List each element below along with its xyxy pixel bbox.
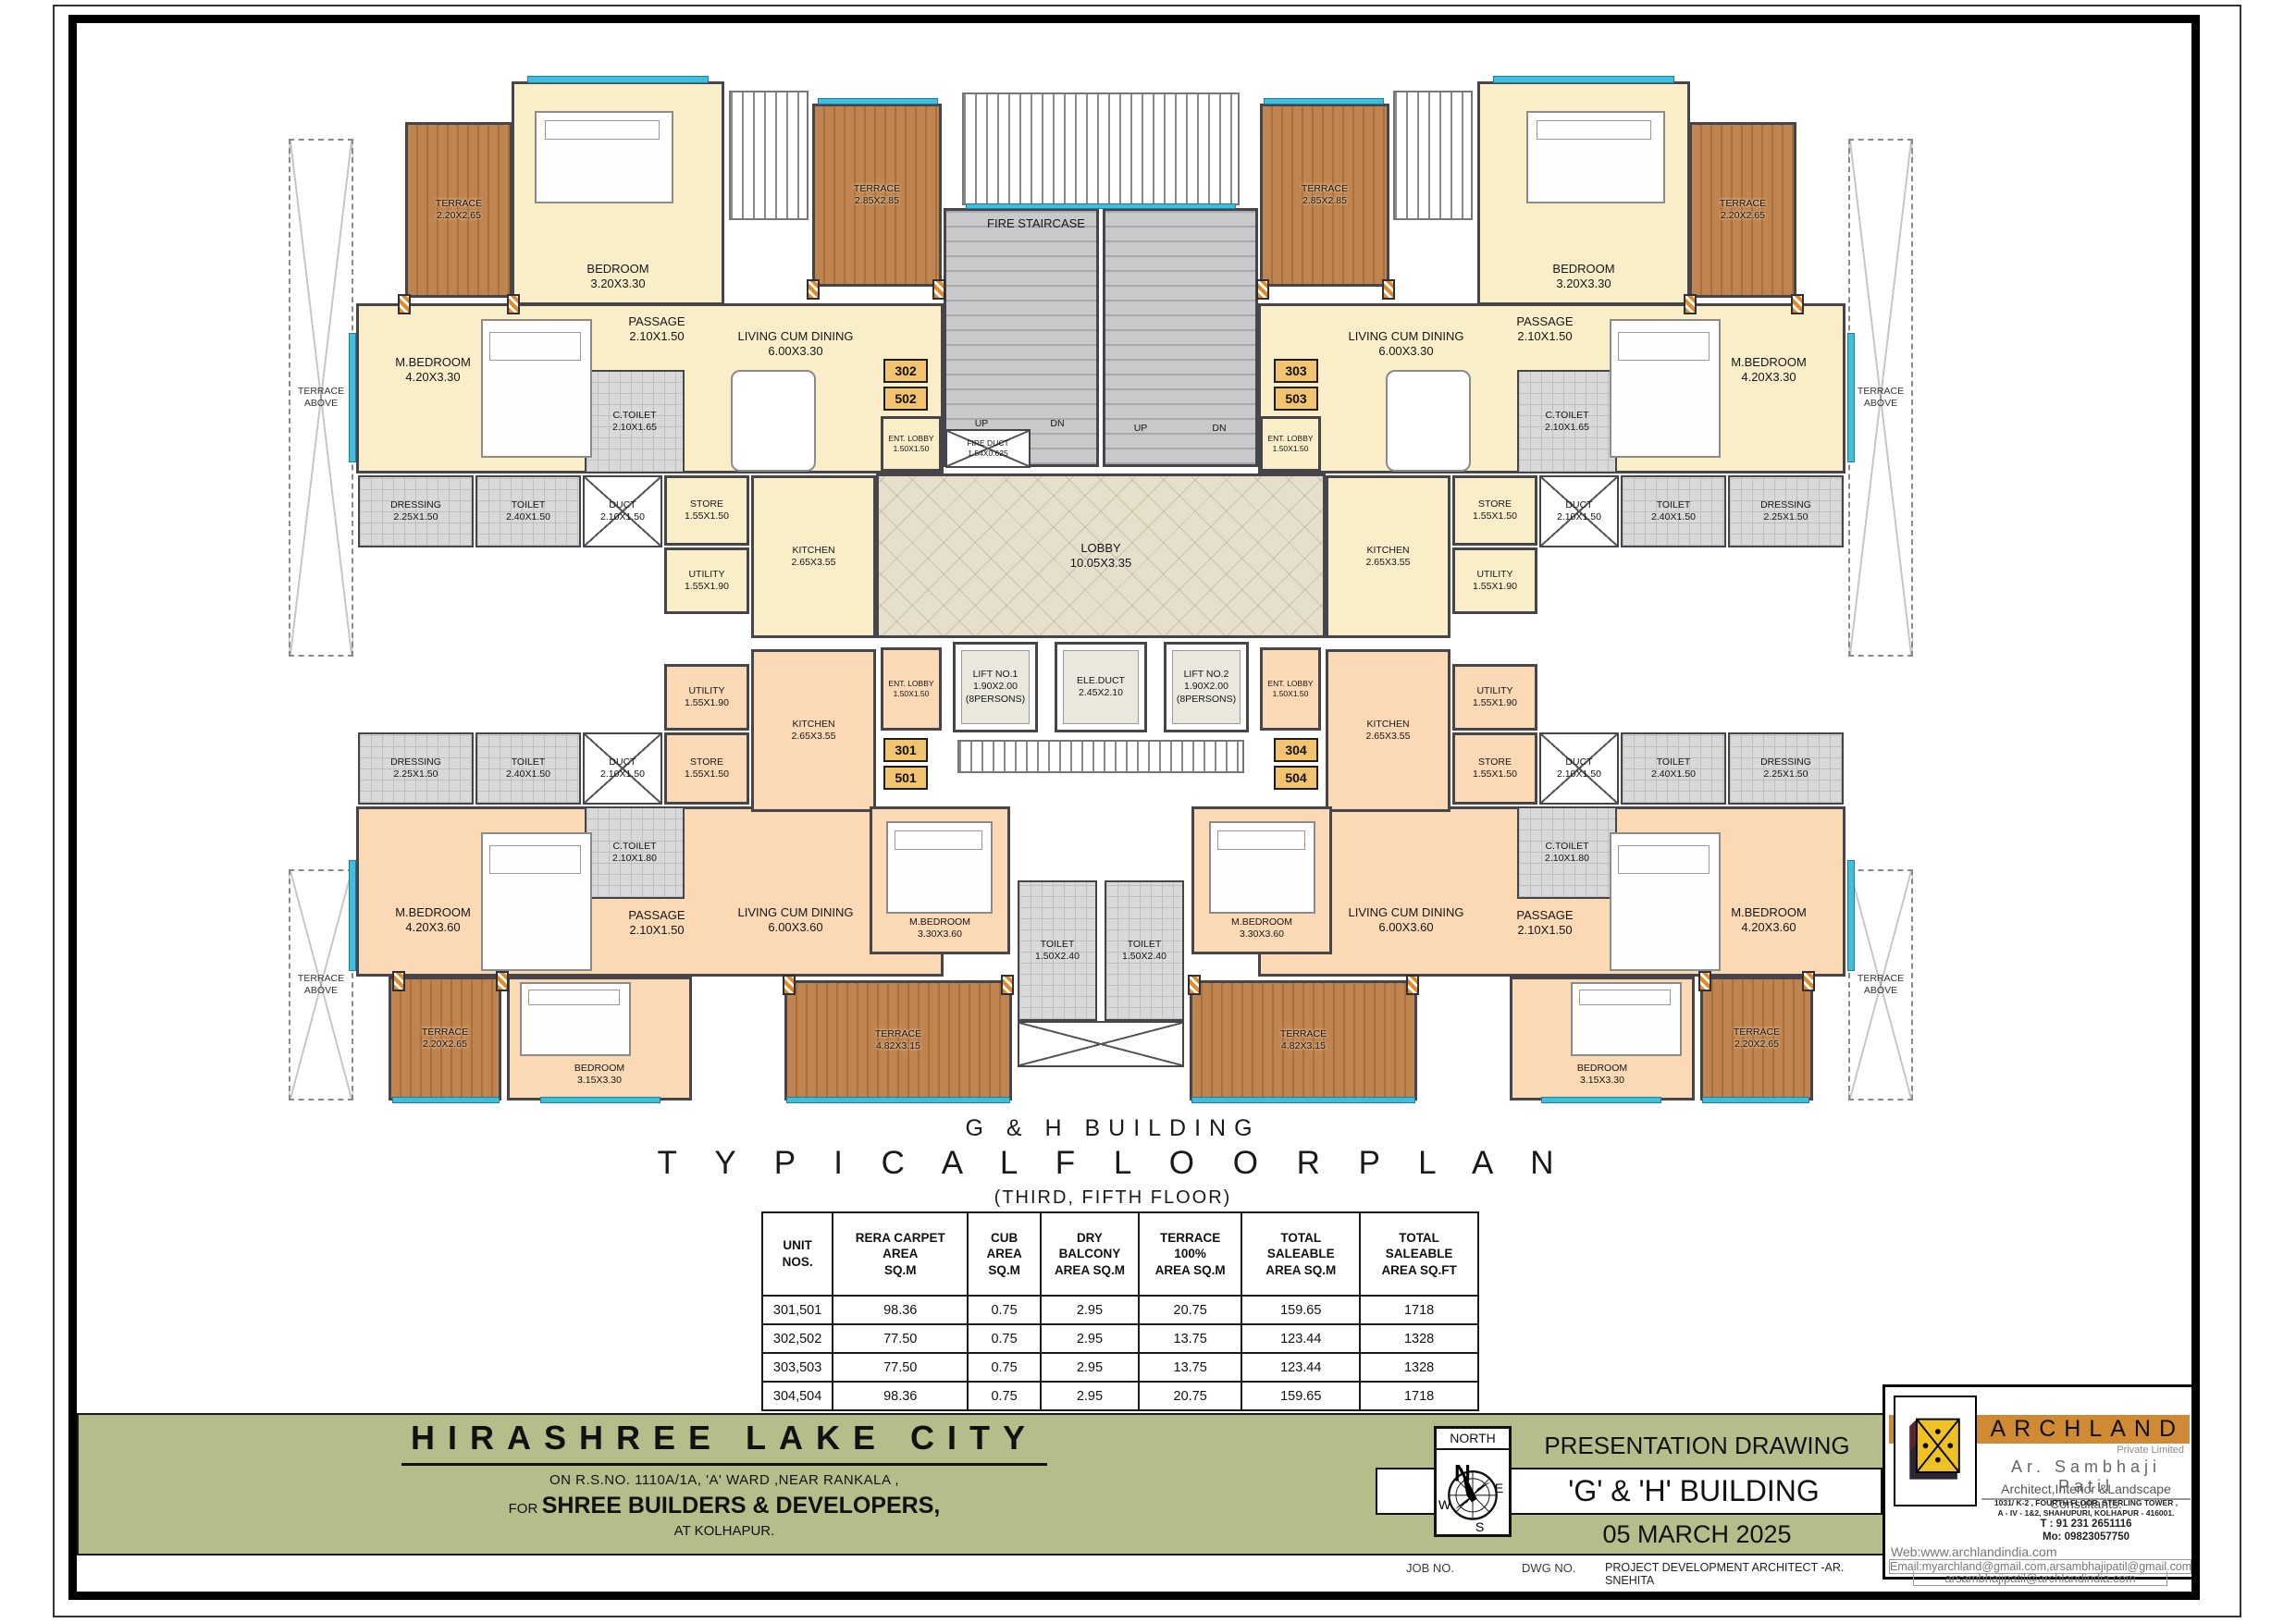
room-dimension: 1.55X1.90 bbox=[1473, 581, 1517, 593]
project-client-line: FOR SHREE BUILDERS & DEVELOPERS, bbox=[77, 1493, 1372, 1519]
plan-subtitle: (THIRD, FIFTH FLOOR) bbox=[650, 1187, 1575, 1209]
unit-tag-304: 304504 bbox=[1274, 738, 1318, 790]
room-label: STORE bbox=[690, 756, 723, 768]
table-cell: 2.95 bbox=[1041, 1353, 1139, 1382]
u304-toilet: TOILET2.40X1.50 bbox=[1621, 732, 1726, 805]
room-dimension: 6.00X3.60 bbox=[768, 920, 822, 935]
u301-terrace-corner: TERRACE2.20X2.65 bbox=[389, 977, 501, 1100]
room-label: DN bbox=[1212, 423, 1226, 435]
window-strip bbox=[1847, 860, 1855, 971]
window-strip bbox=[1191, 1097, 1415, 1103]
room-label: KITCHEN bbox=[1366, 719, 1409, 731]
room-dimension: 2.10X1.50 bbox=[629, 923, 684, 938]
archland-logo-icon bbox=[1895, 1397, 1975, 1505]
terrace-above-tl: TERRACE ABOVE bbox=[289, 139, 353, 657]
lobby: LOBBY10.05X3.35 bbox=[876, 473, 1326, 638]
room-dimension: (8PERSONS) bbox=[1177, 694, 1236, 706]
column bbox=[807, 279, 820, 300]
table-cell: 0.75 bbox=[968, 1324, 1041, 1353]
compass-n: N bbox=[1454, 1462, 1471, 1487]
u301-utility: UTILITY1.55X1.90 bbox=[664, 664, 749, 731]
table-cell: 0.75 bbox=[968, 1382, 1041, 1410]
room-dimension: 2.10X1.50 bbox=[600, 768, 645, 781]
room-label: TERRACE bbox=[1734, 1027, 1780, 1039]
table-cell: 20.75 bbox=[1139, 1382, 1241, 1410]
column bbox=[398, 294, 411, 314]
unit-number: 301 bbox=[883, 738, 928, 762]
room-dimension: 2.10X1.50 bbox=[1517, 923, 1572, 938]
u303-utility: UTILITY1.55X1.90 bbox=[1452, 547, 1537, 614]
window-strip bbox=[1541, 1097, 1661, 1103]
area-table-head: UNIT NOS.RERA CARPET AREASQ.MCUB AREASQ.… bbox=[762, 1212, 1478, 1296]
window-strip bbox=[1702, 1097, 1809, 1103]
room-label: UTILITY bbox=[1476, 569, 1512, 581]
room-label: TERRACE bbox=[422, 1027, 468, 1039]
u304-ent-lobby: ENT. LOBBY1.50X1.50 bbox=[1260, 647, 1321, 731]
u301-mbedroom-label: M.BEDROOM4.20X3.60 bbox=[368, 902, 498, 939]
u303-ent-lobby: ENT. LOBBY1.50X1.50 bbox=[1260, 416, 1321, 472]
louver-top-center bbox=[962, 92, 1240, 205]
column bbox=[1802, 971, 1815, 991]
room-dimension: 1.54X0.625 bbox=[968, 449, 1007, 459]
toilet-center-right: TOILET1.50X2.40 bbox=[1105, 880, 1184, 1021]
room-dimension: 2.45X2.10 bbox=[1079, 687, 1123, 699]
u301-toilet: TOILET2.40X1.50 bbox=[475, 732, 581, 805]
u302-mbedroom-label: M.BEDROOM4.20X3.30 bbox=[368, 351, 498, 388]
table-cell: 123.44 bbox=[1241, 1353, 1360, 1382]
area-table: UNIT NOS.RERA CARPET AREASQ.MCUB AREASQ.… bbox=[761, 1211, 1479, 1411]
room-dimension: 2.65X3.55 bbox=[1366, 557, 1411, 569]
u301-ent-lobby: ENT. LOBBY1.50X1.50 bbox=[881, 647, 942, 731]
terrace-above-br: TERRACE ABOVE bbox=[1848, 869, 1913, 1100]
room-dimension: 2.10X1.50 bbox=[600, 511, 645, 523]
column bbox=[1188, 975, 1201, 995]
room-label: M.BEDROOM bbox=[395, 355, 471, 370]
unit-number: 304 bbox=[1274, 738, 1318, 762]
room-dimension: 1.50X2.40 bbox=[1122, 951, 1167, 963]
table-cell: 0.75 bbox=[968, 1353, 1041, 1382]
room-dimension: 6.00X3.60 bbox=[1378, 920, 1433, 935]
u302-ctoilet: C.TOILET2.10X1.65 bbox=[585, 370, 685, 473]
terrace-center-right: TERRACE2.85X2.85 bbox=[1260, 104, 1389, 287]
room-label: FIRE DUCT bbox=[967, 438, 1008, 449]
window-strip bbox=[349, 333, 356, 462]
room-dimension: 2.20X2.65 bbox=[1721, 210, 1765, 222]
window-strip bbox=[349, 860, 356, 971]
plan-title: T Y P I C A L F L O O R P L A N bbox=[650, 1145, 1575, 1182]
compass-e: E bbox=[1495, 1482, 1504, 1496]
dwg-no-label: DWG NO. bbox=[1522, 1561, 1576, 1575]
toilet-center-left: TOILET1.50X2.40 bbox=[1018, 880, 1097, 1021]
table-cell: 20.75 bbox=[1139, 1296, 1241, 1324]
table-cell: 2.95 bbox=[1041, 1324, 1139, 1353]
room-dimension: 1.55X1.90 bbox=[685, 581, 729, 593]
room-label: TERRACE bbox=[1302, 183, 1348, 195]
room-dimension: 3.15X3.30 bbox=[577, 1075, 622, 1087]
archland-private-limited: Private Limited bbox=[2117, 1445, 2184, 1456]
room-label: ELE.DUCT bbox=[1077, 675, 1125, 687]
u301-ctoilet: C.TOILET2.10X1.80 bbox=[585, 806, 685, 899]
table-row: 304,50498.360.752.9520.75159.651718 bbox=[762, 1382, 1478, 1410]
room-dimension: 2.10X1.50 bbox=[629, 329, 684, 344]
room-label: TERRACE ABOVE bbox=[290, 973, 352, 997]
architect-website: Web:www.archlandindia.com bbox=[1891, 1544, 2057, 1559]
room-label: KITCHEN bbox=[1366, 545, 1409, 557]
unit-number: 502 bbox=[883, 387, 928, 411]
column bbox=[1382, 279, 1395, 300]
room-dimension: (8PERSONS) bbox=[966, 694, 1025, 706]
room-label: PASSAGE bbox=[1516, 314, 1573, 329]
room-label: DUCT bbox=[609, 499, 636, 511]
room-dimension: 2.85X2.85 bbox=[855, 195, 899, 207]
unit-number: 501 bbox=[883, 766, 928, 790]
room-label: LOBBY bbox=[1080, 541, 1120, 556]
room-label: LIFT NO.2 bbox=[1184, 669, 1229, 681]
room-dimension: 1.50X1.50 bbox=[894, 444, 930, 454]
room-dimension: 3.30X3.60 bbox=[918, 928, 962, 941]
table-cell: 301,501 bbox=[762, 1296, 833, 1324]
archland-name: ARCHLAND bbox=[1990, 1416, 2190, 1443]
room-label: TERRACE bbox=[1720, 198, 1766, 210]
room-dimension: 2.25X1.50 bbox=[394, 511, 438, 523]
stair-up-2: UP bbox=[1117, 421, 1164, 437]
u304-terrace-corner: TERRACE2.20X2.65 bbox=[1700, 977, 1813, 1100]
room-label: TERRACE bbox=[436, 198, 482, 210]
room-dimension: 4.82X3.15 bbox=[1281, 1040, 1326, 1052]
compass-rose-icon: N E W S bbox=[1437, 1450, 1509, 1535]
table-cell: 304,504 bbox=[762, 1382, 833, 1410]
drawing-sheet: TERRACE ABOVETERRACE ABOVETERRACE ABOVET… bbox=[0, 0, 2296, 1623]
table-cell: 0.75 bbox=[968, 1296, 1041, 1324]
column bbox=[1684, 294, 1697, 314]
u301-dressing: DRESSING2.25X1.50 bbox=[358, 732, 474, 805]
u304-utility: UTILITY1.55X1.90 bbox=[1452, 664, 1537, 731]
table-cell: 302,502 bbox=[762, 1324, 833, 1353]
room-label: UTILITY bbox=[688, 685, 724, 697]
u302-utility: UTILITY1.55X1.90 bbox=[664, 547, 749, 614]
bed bbox=[1610, 319, 1721, 458]
room-label: TOILET bbox=[1128, 939, 1162, 951]
ele-duct: ELE.DUCT2.45X2.10 bbox=[1055, 642, 1147, 732]
table-cell: 159.65 bbox=[1241, 1296, 1360, 1324]
table-cell: 2.95 bbox=[1041, 1382, 1139, 1410]
job-no-label: JOB NO. bbox=[1406, 1561, 1454, 1575]
room-label: M.BEDROOM bbox=[1231, 916, 1292, 928]
room-label: TERRACE ABOVE bbox=[290, 386, 352, 410]
column bbox=[1698, 971, 1711, 991]
room-label: PASSAGE bbox=[628, 314, 685, 329]
room-label: FIRE STAIRCASE bbox=[987, 216, 1085, 231]
table-header-cell: DRY BALCONYAREA SQ.M bbox=[1041, 1212, 1139, 1296]
drawing-date: 05 MARCH 2025 bbox=[1512, 1520, 1882, 1549]
u304-living-label: LIVING CUM DINING6.00X3.60 bbox=[1309, 902, 1503, 939]
table-cell: 1328 bbox=[1360, 1353, 1478, 1382]
project-address-line: ON R.S.NO. 1110A/1A, 'A' WARD ,NEAR RANK… bbox=[77, 1472, 1372, 1488]
terrace-center-left: TERRACE2.85X2.85 bbox=[812, 104, 942, 287]
room-label: STORE bbox=[690, 498, 723, 510]
room-label: UP bbox=[1134, 423, 1148, 435]
u303-duct: DUCT2.10X1.50 bbox=[1539, 475, 1619, 547]
unit-tag-301: 301501 bbox=[883, 738, 928, 790]
u304-dressing: DRESSING2.25X1.50 bbox=[1728, 732, 1844, 805]
unit-number: 302 bbox=[883, 359, 928, 383]
room-label: BEDROOM bbox=[1577, 1063, 1627, 1075]
room-dimension: 1.90X2.00 bbox=[1184, 681, 1228, 693]
room-dimension: 1.50X2.40 bbox=[1035, 951, 1080, 963]
compass-s: S bbox=[1475, 1520, 1485, 1535]
bed bbox=[1209, 821, 1315, 914]
unit-number: 504 bbox=[1274, 766, 1318, 790]
client-prefix: FOR bbox=[509, 1501, 538, 1517]
louver-gap-303 bbox=[1393, 91, 1473, 220]
room-label: UTILITY bbox=[1476, 685, 1512, 697]
room-dimension: 4.20X3.30 bbox=[405, 370, 460, 385]
room-label: DUCT bbox=[1565, 499, 1592, 511]
project-city-line: AT KOLHAPUR. bbox=[77, 1523, 1372, 1539]
u301-store: STORE1.55X1.50 bbox=[664, 732, 749, 805]
room-label: TERRACE ABOVE bbox=[1850, 973, 1911, 997]
room-dimension: 2.10X1.80 bbox=[612, 853, 657, 865]
room-label: LIVING CUM DINING bbox=[1349, 329, 1464, 344]
bed bbox=[1571, 982, 1682, 1056]
lift-1: LIFT NO.11.90X2.00(8PERSONS) bbox=[953, 642, 1038, 732]
dining-table bbox=[1386, 370, 1471, 472]
column bbox=[496, 971, 509, 991]
room-label: M.BEDROOM bbox=[1731, 355, 1807, 370]
window-strip bbox=[786, 1097, 1010, 1103]
u301-kitchen: KITCHEN2.65X3.55 bbox=[751, 649, 876, 812]
room-label: C.TOILET bbox=[612, 841, 656, 853]
column bbox=[1406, 975, 1419, 995]
room-dimension: 2.65X3.55 bbox=[1366, 731, 1411, 743]
architect-telephone: T : 91 231 2651116 bbox=[1981, 1518, 2191, 1530]
table-cell: 1328 bbox=[1360, 1324, 1478, 1353]
table-cell: 1718 bbox=[1360, 1296, 1478, 1324]
room-dimension: 1.50X1.50 bbox=[1273, 689, 1309, 699]
u303-mbedroom-label: M.BEDROOM4.20X3.30 bbox=[1704, 351, 1833, 388]
u301-terrace: TERRACE4.82X3.15 bbox=[784, 980, 1012, 1100]
room-dimension: 1.90X2.00 bbox=[973, 681, 1018, 693]
table-row: 301,50198.360.752.9520.75159.651718 bbox=[762, 1296, 1478, 1324]
terrace-above-tr: TERRACE ABOVE bbox=[1848, 139, 1913, 657]
column bbox=[932, 279, 945, 300]
u302-terrace: TERRACE2.20X2.65 bbox=[405, 122, 512, 298]
u304-kitchen: KITCHEN2.65X3.55 bbox=[1326, 649, 1450, 812]
room-label: TOILET bbox=[1657, 756, 1691, 768]
room-dimension: 1.55X1.90 bbox=[685, 697, 729, 709]
u303-terrace: TERRACE2.20X2.65 bbox=[1689, 122, 1796, 298]
room-dimension: 4.82X3.15 bbox=[876, 1040, 920, 1052]
archland-logo-frame bbox=[1894, 1396, 1977, 1506]
table-cell: 98.36 bbox=[833, 1382, 968, 1410]
north-label: NORTH bbox=[1437, 1429, 1509, 1450]
room-label: M.BEDROOM bbox=[909, 916, 970, 928]
table-header-cell: TOTAL SALEABLEAREA SQ.FT bbox=[1360, 1212, 1478, 1296]
table-header-cell: UNIT NOS. bbox=[762, 1212, 833, 1296]
room-dimension: 2.10X1.65 bbox=[612, 422, 657, 434]
window-strip bbox=[392, 1097, 500, 1103]
louver-gap-302 bbox=[729, 91, 809, 220]
u304-ctoilet: C.TOILET2.10X1.80 bbox=[1517, 806, 1617, 899]
u302-ent-lobby: ENT. LOBBY1.50X1.50 bbox=[881, 416, 942, 472]
table-cell: 159.65 bbox=[1241, 1382, 1360, 1410]
room-label: ENT. LOBBY bbox=[1267, 679, 1313, 689]
table-row: 302,50277.500.752.9513.75123.441328 bbox=[762, 1324, 1478, 1353]
architect-mobile: Mo: 09823057750 bbox=[1981, 1531, 2191, 1543]
u303-dressing: DRESSING2.25X1.50 bbox=[1728, 475, 1844, 547]
bed bbox=[520, 982, 631, 1056]
room-dimension: 2.20X2.65 bbox=[437, 210, 481, 222]
room-label: STORE bbox=[1478, 756, 1512, 768]
room-label: BEDROOM bbox=[1552, 262, 1614, 277]
room-dimension: 2.10X1.50 bbox=[1517, 329, 1572, 344]
room-dimension: 1.55X1.50 bbox=[1473, 768, 1517, 781]
unit-tag-303: 303503 bbox=[1274, 359, 1318, 411]
stair-dn-1: DN bbox=[1034, 416, 1080, 433]
window-strip bbox=[1847, 333, 1855, 462]
room-label: UP bbox=[975, 418, 989, 430]
room-label: PASSAGE bbox=[1516, 908, 1573, 923]
table-cell: 13.75 bbox=[1139, 1324, 1241, 1353]
column bbox=[1256, 279, 1269, 300]
room-label: TOILET bbox=[1657, 499, 1691, 511]
room-dimension: 1.55X1.50 bbox=[685, 510, 729, 523]
unit-tag-302: 302502 bbox=[883, 359, 928, 411]
room-dimension: 3.20X3.30 bbox=[590, 277, 645, 291]
table-cell: 2.95 bbox=[1041, 1296, 1139, 1324]
architect-firm-block: ARCHLAND Private Limited Ar. Sambhaji Pa… bbox=[1882, 1384, 2194, 1580]
room-label: M.BEDROOM bbox=[395, 905, 471, 920]
window-strip bbox=[966, 203, 1236, 209]
room-label: TOILET bbox=[512, 499, 546, 511]
room-dimension: 2.85X2.85 bbox=[1302, 195, 1347, 207]
room-label: TERRACE bbox=[1280, 1028, 1327, 1040]
column bbox=[783, 975, 796, 995]
room-label: LIVING CUM DINING bbox=[1349, 905, 1464, 920]
u302-dressing: DRESSING2.25X1.50 bbox=[358, 475, 474, 547]
lift-2: LIFT NO.21.90X2.00(8PERSONS) bbox=[1164, 642, 1249, 732]
louver-bottom-center bbox=[957, 740, 1244, 773]
bed bbox=[1526, 111, 1665, 203]
room-dimension: 2.10X1.65 bbox=[1545, 422, 1589, 434]
table-header-cell: CUB AREASQ.M bbox=[968, 1212, 1041, 1296]
u301-duct: DUCT2.10X1.50 bbox=[583, 732, 662, 805]
room-dimension: 2.65X3.55 bbox=[792, 557, 836, 569]
room-label: BEDROOM bbox=[586, 262, 648, 277]
room-label: KITCHEN bbox=[792, 719, 834, 731]
table-header-cell: RERA CARPET AREASQ.M bbox=[833, 1212, 968, 1296]
architect-email-2: arsambhajipatil@archlandindia.com bbox=[1913, 1571, 2167, 1586]
room-dimension: 1.55X1.50 bbox=[1473, 510, 1517, 523]
room-label: DRESSING bbox=[390, 499, 441, 511]
window-strip bbox=[540, 1097, 660, 1103]
room-dimension: 2.40X1.50 bbox=[506, 768, 550, 781]
room-dimension: 1.55X1.50 bbox=[685, 768, 729, 781]
room-label: C.TOILET bbox=[612, 410, 656, 422]
room-dimension: 2.20X2.65 bbox=[423, 1039, 467, 1051]
room-dimension: 1.50X1.50 bbox=[894, 689, 930, 699]
room-label: TOILET bbox=[1041, 939, 1075, 951]
u303-toilet: TOILET2.40X1.50 bbox=[1621, 475, 1726, 547]
room-dimension: 2.40X1.50 bbox=[1651, 511, 1696, 523]
table-cell: 98.36 bbox=[833, 1296, 968, 1324]
fire-staircase-label: FIRE STAIRCASE bbox=[953, 215, 1119, 233]
room-dimension: 6.00X3.30 bbox=[1378, 344, 1433, 359]
room-dimension: 2.25X1.50 bbox=[1764, 768, 1808, 781]
room-dimension: 2.10X1.50 bbox=[1557, 768, 1601, 781]
room-dimension: 2.20X2.65 bbox=[1734, 1039, 1779, 1051]
bed bbox=[535, 111, 673, 203]
room-label: LIVING CUM DINING bbox=[738, 329, 854, 344]
room-label: DRESSING bbox=[1760, 499, 1811, 511]
bed bbox=[886, 821, 993, 914]
plan-building-title: G & H BUILDING bbox=[650, 1115, 1575, 1142]
u302-living-label: LIVING CUM DINING6.00X3.30 bbox=[698, 326, 893, 363]
north-compass-box: NORTH N E W S bbox=[1434, 1426, 1512, 1537]
window-strip bbox=[1493, 76, 1674, 83]
room-label: ENT. LOBBY bbox=[888, 434, 933, 444]
architect-address-1: 1031/ K-2 , FOURTH FLOOR, STERLING TOWER… bbox=[1981, 1498, 2191, 1507]
u303-store: STORE1.55X1.50 bbox=[1452, 475, 1537, 546]
room-dimension: 4.20X3.30 bbox=[1741, 370, 1796, 385]
room-label: LIVING CUM DINING bbox=[738, 905, 854, 920]
room-label: DRESSING bbox=[390, 756, 441, 768]
room-label: C.TOILET bbox=[1545, 841, 1588, 853]
dining-table bbox=[731, 370, 816, 472]
table-header-cell: TERRACE 100%AREA SQ.M bbox=[1139, 1212, 1241, 1296]
table-header-cell: TOTAL SALEABLEAREA SQ.M bbox=[1241, 1212, 1360, 1296]
u301-living-label: LIVING CUM DINING6.00X3.60 bbox=[698, 902, 893, 939]
room-dimension: 2.10X1.80 bbox=[1545, 853, 1589, 865]
room-label: C.TOILET bbox=[1545, 410, 1588, 422]
room-label: ENT. LOBBY bbox=[888, 679, 933, 689]
room-dimension: 1.50X1.50 bbox=[1273, 444, 1309, 454]
room-dimension: 4.20X3.60 bbox=[1741, 920, 1796, 935]
room-dimension: 3.20X3.30 bbox=[1556, 277, 1611, 291]
column bbox=[1791, 294, 1804, 314]
room-label: TERRACE ABOVE bbox=[1850, 386, 1911, 410]
bed bbox=[481, 319, 592, 458]
room-label: KITCHEN bbox=[792, 545, 834, 557]
unit-number: 503 bbox=[1274, 387, 1318, 411]
window-strip bbox=[818, 98, 938, 105]
unit-number: 303 bbox=[1274, 359, 1318, 383]
column bbox=[392, 971, 405, 991]
room-label: DRESSING bbox=[1760, 756, 1811, 768]
table-cell: 13.75 bbox=[1139, 1353, 1241, 1382]
u304-store: STORE1.55X1.50 bbox=[1452, 732, 1537, 805]
fire-duct: FIRE DUCT1.54X0.625 bbox=[945, 429, 1031, 468]
client-name: SHREE BUILDERS & DEVELOPERS, bbox=[542, 1493, 941, 1518]
u304-terrace: TERRACE4.82X3.15 bbox=[1190, 980, 1417, 1100]
u302-store: STORE1.55X1.50 bbox=[664, 475, 749, 546]
terrace-above-bl: TERRACE ABOVE bbox=[289, 869, 353, 1100]
project-title-block: HIRASHREE LAKE CITY ON R.S.NO. 1110A/1A,… bbox=[77, 1417, 1372, 1539]
room-label: LIFT NO.1 bbox=[973, 669, 1018, 681]
compass-w: W bbox=[1438, 1498, 1451, 1513]
room-dimension: 3.15X3.30 bbox=[1580, 1075, 1624, 1087]
window-strip bbox=[527, 76, 709, 83]
room-dimension: 2.40X1.50 bbox=[506, 511, 550, 523]
area-table-body: 301,50198.360.752.9520.75159.651718302,5… bbox=[762, 1296, 1478, 1410]
room-label: DUCT bbox=[1565, 756, 1592, 768]
room-label: M.BEDROOM bbox=[1731, 905, 1807, 920]
room-label: PASSAGE bbox=[628, 908, 685, 923]
room-dimension: 2.65X3.55 bbox=[792, 731, 836, 743]
room-label: UTILITY bbox=[688, 569, 724, 581]
column bbox=[507, 294, 520, 314]
u302-duct: DUCT2.10X1.50 bbox=[583, 475, 662, 547]
